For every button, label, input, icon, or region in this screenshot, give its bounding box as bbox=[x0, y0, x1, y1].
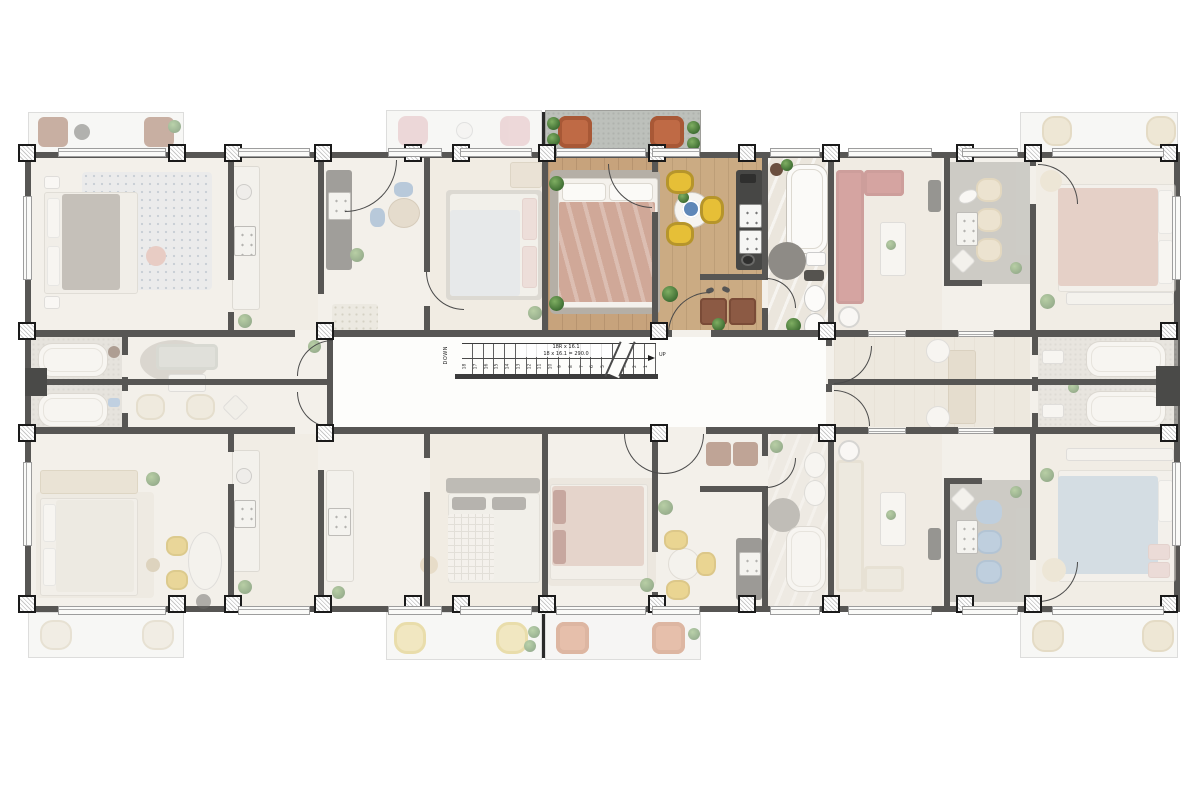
wall bbox=[1032, 377, 1038, 391]
corridor-wall bbox=[906, 427, 958, 434]
column bbox=[818, 322, 836, 340]
corridor-wall bbox=[25, 427, 295, 434]
wall bbox=[1030, 434, 1036, 560]
wall bbox=[700, 274, 768, 280]
balcony-bottom-center-right bbox=[545, 612, 701, 660]
column bbox=[650, 322, 668, 340]
column bbox=[314, 144, 332, 162]
column bbox=[1160, 424, 1178, 442]
window bbox=[238, 148, 310, 157]
wall bbox=[762, 158, 768, 276]
wall bbox=[542, 158, 548, 330]
column bbox=[538, 144, 556, 162]
corridor-wall bbox=[994, 330, 1180, 337]
corridor-wall bbox=[994, 427, 1180, 434]
column bbox=[168, 144, 186, 162]
window bbox=[962, 148, 1018, 157]
balcony-bottom-center-left bbox=[386, 612, 542, 660]
balcony-bottom-left bbox=[28, 612, 184, 658]
wall bbox=[944, 478, 950, 606]
wall bbox=[762, 308, 768, 330]
wall bbox=[122, 413, 128, 427]
column bbox=[1024, 144, 1042, 162]
stair-walkline-arrow bbox=[648, 355, 655, 361]
window bbox=[556, 606, 646, 615]
balcony-bottom-right bbox=[1020, 612, 1178, 658]
window bbox=[58, 606, 166, 615]
wall bbox=[228, 434, 234, 452]
wall bbox=[652, 212, 658, 330]
stair-tread: 17 bbox=[473, 344, 484, 375]
opening-sill bbox=[958, 331, 994, 337]
spine-wall bbox=[828, 379, 1180, 385]
balcony-door bbox=[460, 606, 532, 615]
window bbox=[238, 606, 310, 615]
window bbox=[770, 148, 820, 157]
window bbox=[58, 148, 166, 157]
stair-tread-number: 8 bbox=[569, 365, 574, 368]
column bbox=[822, 144, 840, 162]
stair-tread-number: 14 bbox=[505, 364, 510, 370]
stair-tread: 16 bbox=[484, 344, 495, 375]
wall bbox=[228, 312, 234, 330]
stair-tread-number: 17 bbox=[473, 364, 478, 370]
stair-tread-number: 10 bbox=[549, 364, 554, 370]
column bbox=[18, 595, 36, 613]
column bbox=[538, 595, 556, 613]
duct-block bbox=[1156, 366, 1180, 406]
wall bbox=[828, 434, 834, 606]
window bbox=[848, 606, 932, 615]
stair-tread-number: 15 bbox=[495, 364, 500, 370]
stair-tread: 18 bbox=[462, 344, 473, 375]
column bbox=[1024, 595, 1042, 613]
stair-tread-number: 7 bbox=[579, 365, 584, 368]
stairwell-wall bbox=[826, 384, 832, 392]
corridor-wall bbox=[706, 427, 868, 434]
corridor-wall bbox=[711, 330, 868, 337]
column bbox=[18, 322, 36, 340]
duct-block bbox=[25, 368, 47, 396]
stair-tread-number: 13 bbox=[516, 364, 521, 370]
floor-plan: 181716151413121110987654321 DOWN 18R x 1… bbox=[0, 0, 1200, 800]
wall bbox=[318, 158, 324, 294]
column bbox=[738, 595, 756, 613]
stair-annotation-line2: 18 x 16.1 = 290.0 bbox=[520, 351, 612, 358]
wall bbox=[762, 488, 768, 606]
stair-tread: 15 bbox=[494, 344, 505, 375]
stair-tread-number: 11 bbox=[538, 364, 543, 370]
wall bbox=[944, 158, 950, 286]
column bbox=[314, 595, 332, 613]
stair-tread-number: 2 bbox=[633, 365, 638, 368]
stair-tread: 2 bbox=[634, 344, 645, 375]
window bbox=[460, 148, 532, 157]
wall bbox=[424, 306, 430, 330]
wall bbox=[424, 434, 430, 458]
wall bbox=[762, 434, 768, 456]
window bbox=[556, 148, 646, 157]
window bbox=[1052, 606, 1164, 615]
balcony-divider bbox=[542, 614, 545, 658]
wall bbox=[1030, 204, 1036, 330]
stair-tread-number: 12 bbox=[527, 364, 532, 370]
balcony-door bbox=[652, 148, 700, 157]
window bbox=[1172, 196, 1181, 280]
corridor-wall bbox=[25, 330, 295, 337]
stair-tread: 14 bbox=[505, 344, 516, 375]
opening-sill bbox=[958, 428, 994, 434]
wall bbox=[700, 486, 768, 492]
stair-down-label: DOWN bbox=[443, 346, 449, 364]
column bbox=[316, 424, 334, 442]
stair-tread-number: 5 bbox=[601, 365, 606, 368]
stair-annotation: 18R x 16.1 18 x 16.1 = 290.0 bbox=[520, 344, 612, 357]
wall bbox=[122, 377, 128, 391]
window bbox=[23, 462, 32, 546]
stair-walkline bbox=[462, 358, 650, 359]
window bbox=[1052, 148, 1164, 157]
window bbox=[770, 606, 820, 615]
stair-tread-number: 6 bbox=[590, 365, 595, 368]
stair-up-label: UP bbox=[659, 352, 666, 358]
wall bbox=[122, 337, 128, 355]
column bbox=[818, 424, 836, 442]
corridor-wall bbox=[333, 330, 672, 337]
column bbox=[316, 322, 334, 340]
column bbox=[738, 144, 756, 162]
opening-sill bbox=[868, 331, 906, 337]
window bbox=[23, 196, 32, 280]
stair-tread-number: 9 bbox=[558, 365, 563, 368]
stair-stringer bbox=[455, 374, 658, 379]
wall bbox=[424, 158, 430, 272]
spine-wall bbox=[25, 379, 327, 385]
wall bbox=[228, 158, 234, 280]
wall bbox=[944, 280, 982, 286]
wall bbox=[318, 470, 324, 606]
stair-tread-number: 16 bbox=[484, 364, 489, 370]
window bbox=[1172, 462, 1181, 546]
opening-sill bbox=[868, 428, 906, 434]
wall bbox=[828, 158, 834, 330]
wall bbox=[1032, 413, 1038, 427]
corridor-wall bbox=[906, 330, 958, 337]
window bbox=[388, 606, 442, 615]
column bbox=[168, 595, 186, 613]
wall bbox=[1032, 337, 1038, 355]
balcony-door bbox=[652, 606, 700, 615]
wall bbox=[228, 484, 234, 606]
window bbox=[962, 606, 1018, 615]
wall bbox=[542, 434, 548, 606]
window bbox=[388, 148, 442, 157]
column bbox=[18, 424, 36, 442]
column bbox=[18, 144, 36, 162]
window bbox=[848, 148, 932, 157]
wall bbox=[424, 492, 430, 606]
corridor-wall bbox=[333, 427, 662, 434]
stair-tread-number: 18 bbox=[462, 364, 467, 370]
column bbox=[822, 595, 840, 613]
column bbox=[1160, 322, 1178, 340]
stair-tread-number: 1 bbox=[644, 365, 649, 368]
column bbox=[650, 424, 668, 442]
